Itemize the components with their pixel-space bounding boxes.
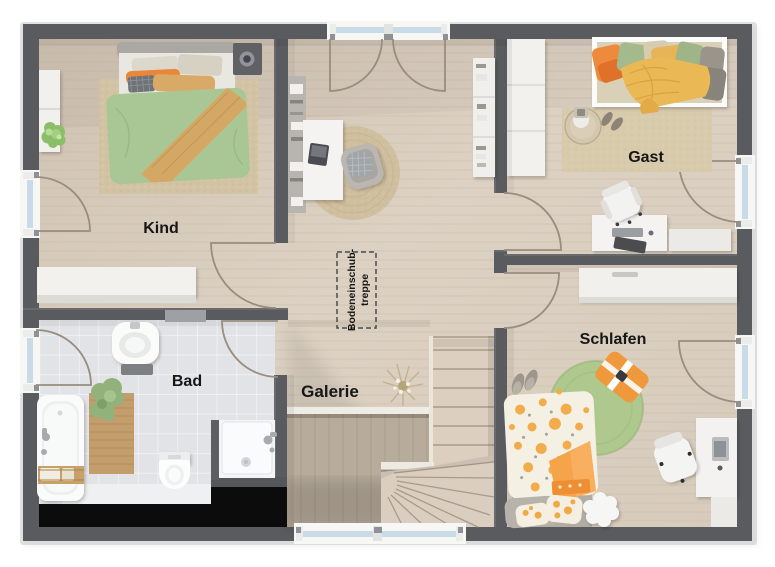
- svg-text:Bad: Bad: [172, 373, 202, 390]
- svg-text:Schlafen: Schlafen: [580, 331, 647, 348]
- svg-text:Bodeneinschub-: Bodeneinschub-: [346, 248, 358, 331]
- svg-text:Kind: Kind: [143, 220, 179, 237]
- svg-text:Galerie: Galerie: [301, 382, 359, 401]
- svg-text:Gast: Gast: [628, 149, 664, 166]
- svg-text:treppe: treppe: [359, 274, 371, 306]
